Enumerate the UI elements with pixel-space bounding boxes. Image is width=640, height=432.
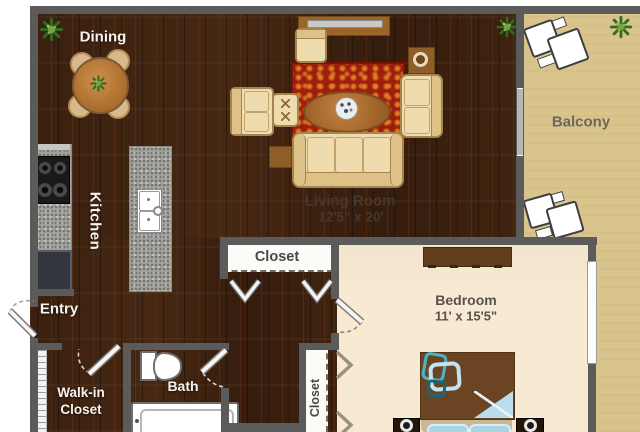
sink-drain — [147, 198, 150, 201]
kitchen-sink — [137, 189, 162, 233]
nightstand — [393, 418, 420, 432]
lamp — [400, 419, 413, 432]
blanket-fold-edge — [474, 391, 513, 418]
wall-bath-top — [123, 343, 229, 350]
sofa-back — [298, 172, 398, 186]
entry-label: Entry — [40, 301, 78, 318]
tub-basin — [140, 409, 234, 432]
wall-closet-left-stub — [220, 245, 228, 279]
sliding-door — [517, 88, 523, 156]
tv-screen — [307, 20, 383, 28]
wall-top — [30, 6, 640, 14]
deco-pillow — [426, 379, 447, 398]
bed-pillow — [427, 424, 469, 432]
nightstand — [516, 418, 544, 432]
wall-closet-south-left — [299, 343, 306, 432]
armchair-back — [232, 89, 242, 134]
bed — [420, 352, 513, 432]
side-table — [408, 47, 435, 74]
armchair-back — [297, 30, 325, 39]
wall-hall-bottom — [229, 423, 301, 432]
sofa-arm — [390, 134, 402, 186]
sofa — [292, 132, 404, 188]
bedroom-dims: 11' x 15'5" — [435, 309, 497, 324]
seat-cushion — [244, 112, 269, 132]
wall-bath-right — [221, 388, 229, 432]
refrigerator — [36, 250, 72, 293]
accent-table — [272, 93, 299, 127]
wall-left-upper — [30, 6, 38, 307]
counter-edge — [33, 144, 70, 151]
bedroom-closet-label: Closet — [308, 379, 322, 417]
loveseat-back — [431, 76, 441, 136]
table-centerpiece — [335, 97, 358, 120]
wall-bath-walkin-divider — [123, 343, 131, 432]
range-stove — [35, 156, 70, 204]
end-table — [269, 146, 292, 168]
dining-table — [72, 57, 129, 114]
seat-cushion — [244, 91, 269, 112]
wall-bedroom-top — [220, 237, 597, 245]
kitchen-label: Kitchen — [87, 192, 104, 251]
walk-in-closet-label: Walk-in Closet — [43, 385, 119, 419]
sink-drain — [147, 218, 150, 221]
seat-cushion — [363, 137, 391, 173]
living-room-label: Living Room — [305, 193, 396, 210]
seat-cushion — [307, 137, 335, 173]
wall-closet-south-top — [305, 343, 339, 350]
seat-cushion — [335, 137, 363, 173]
bath-label: Bath — [167, 378, 198, 394]
sofa-arm — [294, 134, 306, 186]
dresser-feet — [428, 265, 506, 268]
decor-bowl — [413, 52, 428, 67]
living-room-dims: 12'5" x 20' — [318, 210, 383, 225]
bedroom-window — [587, 261, 597, 364]
seat-cushion — [404, 79, 430, 106]
dining-label: Dining — [80, 29, 127, 46]
wall-walkin-top — [38, 343, 62, 350]
bedroom-label: Bedroom — [435, 292, 496, 308]
bed-pillow — [469, 424, 511, 432]
loveseat — [400, 74, 443, 138]
sink-faucet — [153, 206, 163, 216]
floor-plan: Dining Kitchen Living Room 12'5" x 20' B… — [0, 0, 640, 432]
hall-closet-label: Closet — [255, 249, 299, 265]
wall-kitchen-entry — [38, 289, 74, 296]
balcony-label: Balcony — [552, 114, 610, 131]
tub-faucet — [135, 419, 139, 423]
armchair — [295, 28, 327, 63]
dresser — [423, 247, 512, 267]
seat-cushion — [404, 107, 430, 134]
wall-left-lower — [30, 338, 38, 432]
lamp — [524, 419, 537, 432]
wall-closet-bedroom — [331, 245, 339, 299]
armchair — [230, 87, 274, 136]
